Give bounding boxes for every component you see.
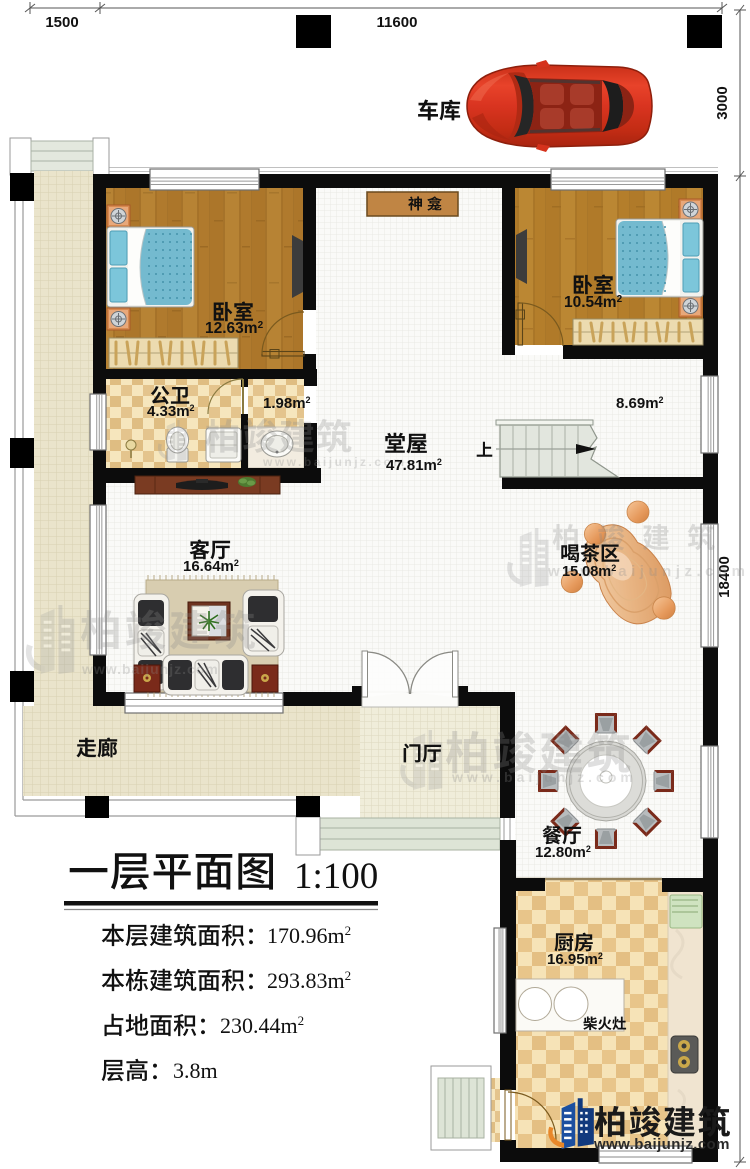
svg-text:11600: 11600 bbox=[377, 14, 418, 31]
svg-text:1.98m2: 1.98m2 bbox=[263, 395, 311, 412]
svg-text:www.baijunjz.com: www.baijunjz.com bbox=[593, 1136, 730, 1153]
svg-text:3000: 3000 bbox=[714, 86, 731, 119]
svg-text:1500: 1500 bbox=[45, 14, 78, 31]
svg-text:12.80m2: 12.80m2 bbox=[535, 844, 591, 861]
svg-text:170.96m2: 170.96m2 bbox=[267, 923, 351, 948]
svg-text:293.83m2: 293.83m2 bbox=[267, 968, 351, 993]
svg-text:47.81m2: 47.81m2 bbox=[386, 457, 442, 474]
svg-text:3.8m: 3.8m bbox=[173, 1058, 218, 1083]
svg-text:4.33m2: 4.33m2 bbox=[147, 403, 195, 420]
svg-text:230.44m2: 230.44m2 bbox=[220, 1013, 304, 1038]
svg-text:15.08m2: 15.08m2 bbox=[562, 563, 616, 580]
svg-text:www.baijunjz.com: www.baijunjz.com bbox=[81, 661, 219, 677]
svg-text:12.63m2: 12.63m2 bbox=[205, 320, 264, 337]
svg-text:www.baijunjz.com: www.baijunjz.com bbox=[262, 455, 407, 469]
svg-text:10.54m2: 10.54m2 bbox=[564, 294, 623, 311]
svg-text:16.95m2: 16.95m2 bbox=[547, 951, 603, 968]
svg-text:1:100: 1:100 bbox=[294, 856, 378, 897]
svg-text:8.69m2: 8.69m2 bbox=[616, 395, 664, 412]
svg-text:www.baijunjz.com: www.baijunjz.com bbox=[451, 769, 637, 785]
svg-text:16.64m2: 16.64m2 bbox=[183, 558, 239, 575]
